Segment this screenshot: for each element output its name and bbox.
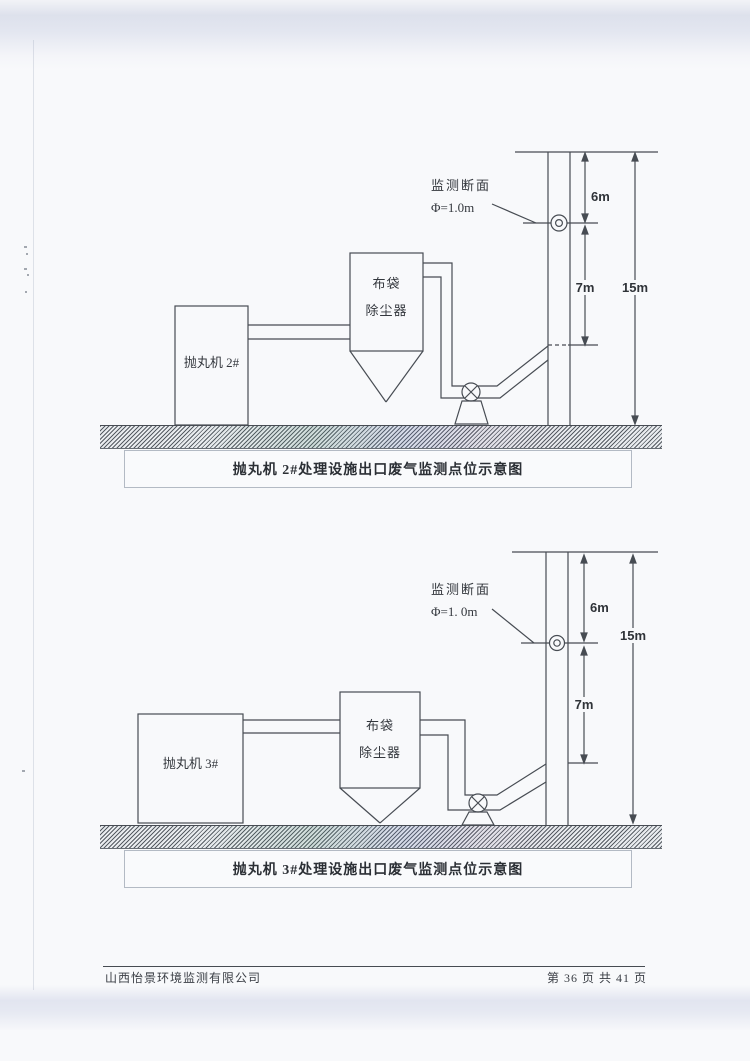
d1-machine-label: 抛丸机 2# [175, 356, 248, 369]
scanned-report-page: 监测断面 Φ=1.0m 6m 7m 15m 抛丸机 2# 布袋 除尘器 抛丸机 … [0, 0, 750, 1061]
d1-ground-hatch [100, 425, 662, 449]
d2-dim-6m-label: 6m [590, 601, 609, 614]
d2-dimension-15m [630, 555, 636, 823]
d1-outlet-duct [423, 263, 548, 398]
d2-caption: 抛丸机 3#处理设施出口废气监测点位示意图 [124, 850, 632, 888]
d1-dimension-6m [582, 153, 588, 222]
d1-fan-icon [455, 383, 488, 424]
d1-dust-collector-box [350, 253, 423, 351]
footer-page-number: 第 36 页 共 41 页 [547, 972, 647, 984]
d2-dimension-6m [581, 555, 587, 641]
d2-dim-7m-label: 7m [570, 697, 598, 712]
d2-hopper [340, 788, 420, 823]
diagram-linework [0, 0, 750, 1061]
d2-dim-15m-label: 15m [616, 628, 650, 643]
d1-dim-6m-label: 6m [591, 190, 610, 203]
d1-caption: 抛丸机 2#处理设施出口废气监测点位示意图 [124, 450, 632, 488]
d2-monitoring-point-icon [550, 636, 565, 651]
d2-collector-label-line1: 布袋 [340, 719, 420, 732]
d1-dim-7m-label: 7m [571, 280, 599, 295]
d2-dust-collector-box [340, 692, 420, 788]
d1-inlet-duct [248, 325, 350, 339]
d2-monitoring-leader [492, 609, 598, 643]
d1-hopper [350, 351, 423, 402]
d2-stack [512, 552, 658, 825]
d2-section-label: 监测断面 [431, 583, 491, 596]
footer-company: 山西怡景环境监测有限公司 [105, 972, 261, 984]
d2-ground-hatch [100, 825, 662, 849]
footer-rule [103, 966, 645, 967]
d1-section-label: 监测断面 [431, 179, 491, 192]
d2-inlet-duct [243, 720, 340, 733]
d2-collector-label-line2: 除尘器 [340, 746, 420, 759]
d2-diameter-label: Φ=1. 0m [431, 605, 477, 618]
d1-collector-label-line2: 除尘器 [350, 304, 423, 317]
d1-collector-label-line1: 布袋 [350, 277, 423, 290]
d1-diameter-label: Φ=1.0m [431, 201, 474, 214]
d1-dim-15m-label: 15m [618, 280, 652, 295]
d2-machine-label: 抛丸机 3# [138, 757, 243, 770]
d1-monitoring-point-icon [551, 215, 567, 231]
